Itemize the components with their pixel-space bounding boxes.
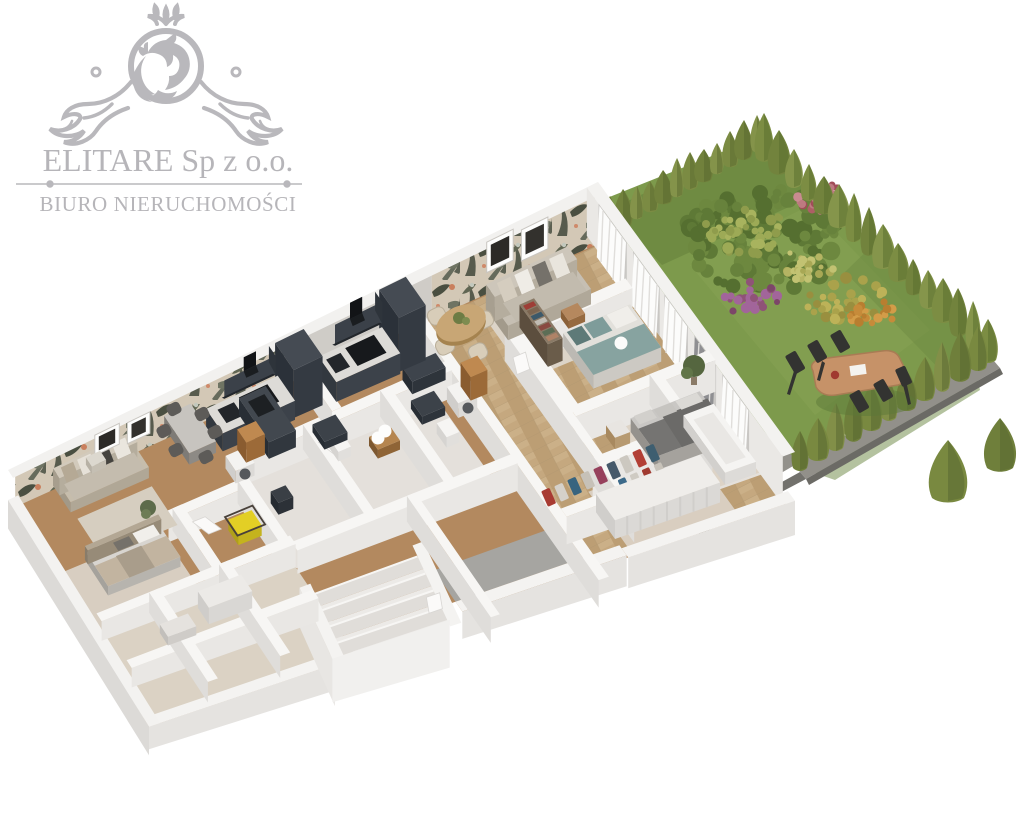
svg-text:ELITARE Sp z o.o.: ELITARE Sp z o.o. — [43, 142, 294, 178]
svg-text:BIURO NIERUCHOMOŚCI: BIURO NIERUCHOMOŚCI — [39, 192, 296, 216]
